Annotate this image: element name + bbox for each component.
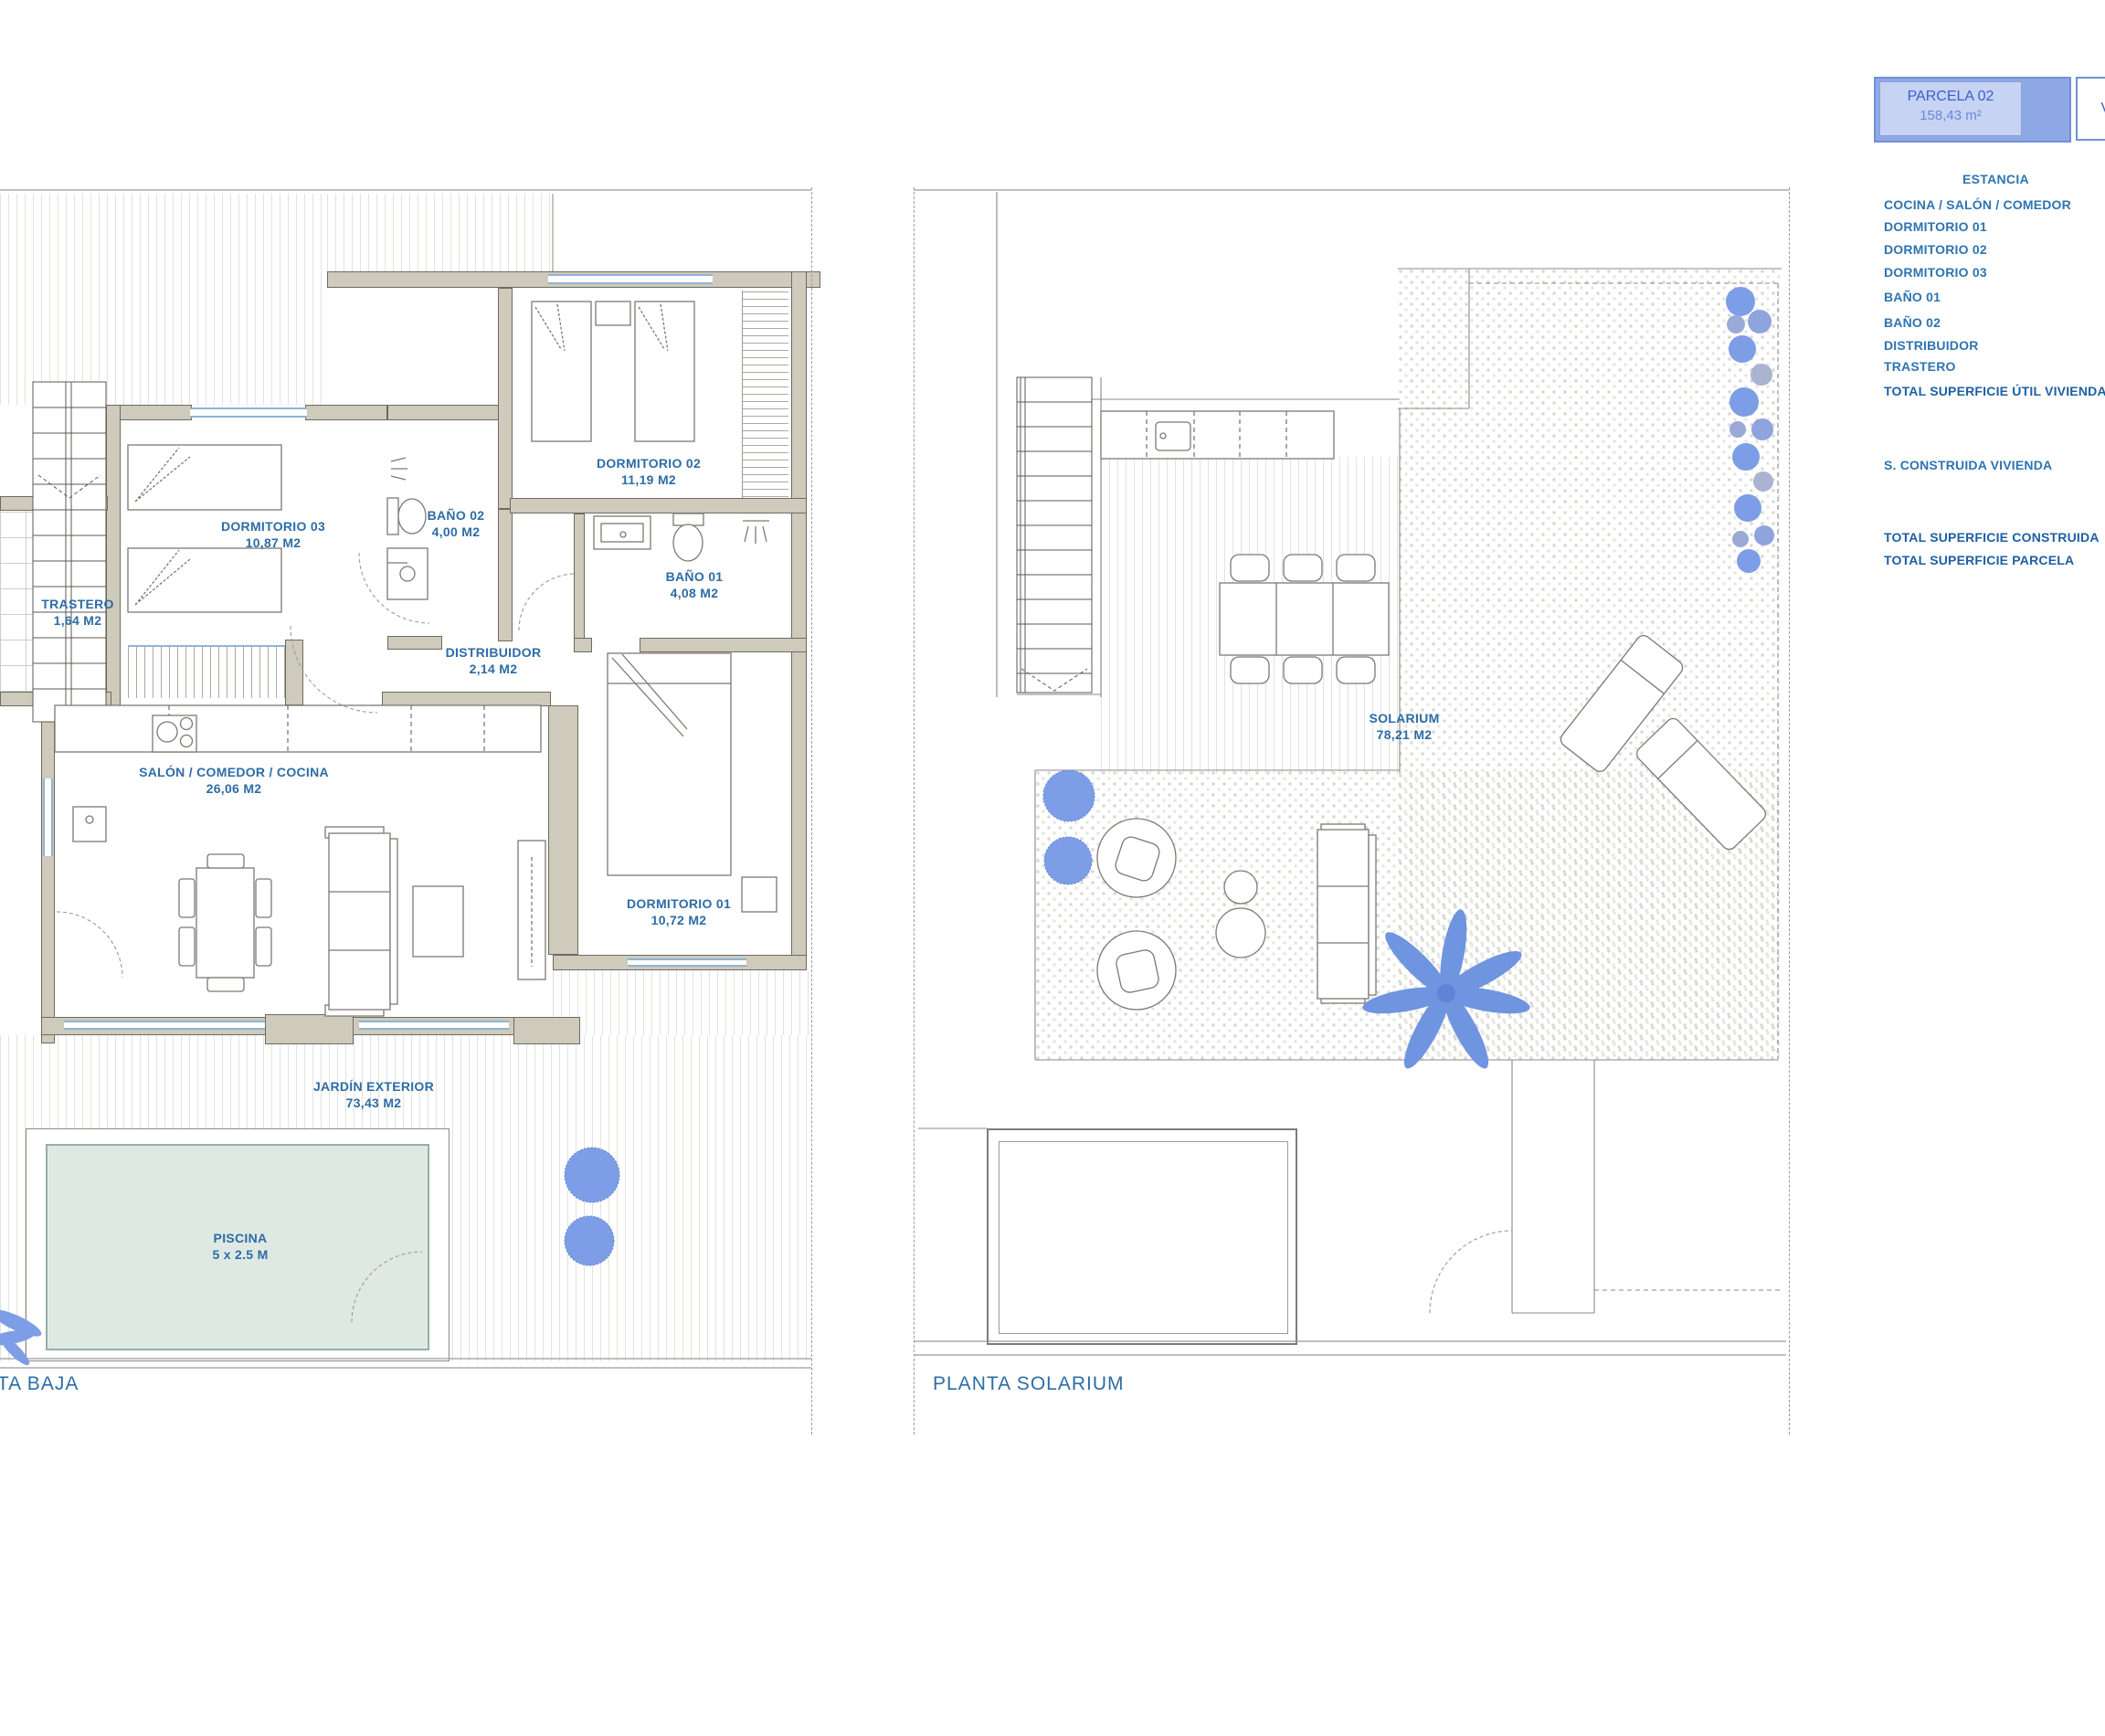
parcela-area: 158,43 m² <box>1880 108 2021 123</box>
room-label-salon-comedor-cocina: SALÓN / COMEDOR / COCINA 26,06 M2 <box>139 764 329 797</box>
legend-item-bano-01: BAÑO 01 <box>1884 290 1941 304</box>
legend-s-construida: S. CONSTRUIDA VIVIENDA <box>1884 458 2052 472</box>
room-area: 4,00 M2 <box>428 524 485 540</box>
room-area: 78,21 M2 <box>1369 726 1439 743</box>
planta-baja-title: PLANTA BAJA <box>0 1373 79 1395</box>
palm-plant-icon <box>1360 907 1531 1073</box>
bathroom-fixtures-bano02 <box>387 458 428 599</box>
legend-item-cocina-salon-comedor: COCINA / SALÓN / COMEDOR <box>1884 197 2071 212</box>
room-area: 73,43 M2 <box>313 1095 434 1111</box>
sun-lounger-icons <box>1558 632 1768 852</box>
room-area: 5 x 2.5 M <box>212 1246 268 1263</box>
legend-item-trastero: TRASTERO <box>1884 359 1956 374</box>
solarium-counter <box>1101 411 1334 459</box>
room-label-bano-02: BAÑO 02 4,00 M2 <box>428 507 485 540</box>
room-area: 10,87 M2 <box>221 535 325 551</box>
room-label-bano-01: BAÑO 01 4,08 M2 <box>666 568 724 601</box>
room-name: DORMITORIO 03 <box>221 518 325 535</box>
stairs-icon-solarium <box>1017 377 1092 693</box>
legend-total-parcela: TOTAL SUPERFICIE PARCELA <box>1884 553 2074 567</box>
room-label-trastero: TRASTERO 1,64 M2 <box>41 596 113 629</box>
dining-table-icon <box>179 854 271 991</box>
terrace-furniture <box>1097 819 1376 1010</box>
legend-total-construida: TOTAL SUPERFICIE CONSTRUIDA <box>1884 530 2100 545</box>
room-area: 1,64 M2 <box>41 612 113 629</box>
room-name: DORMITORIO 02 <box>597 455 701 471</box>
legend-item-dormitorio-03: DORMITORIO 03 <box>1884 265 1987 280</box>
floor-plan-sheet: { "legend": { "parcela": { "title": "PAR… <box>0 0 2105 1736</box>
room-label-dormitorio-01: DORMITORIO 01 10,72 M2 <box>627 895 731 928</box>
room-name: JARDÍN EXTERIOR <box>313 1078 434 1095</box>
room-area: 4,08 M2 <box>666 585 724 601</box>
stairs-icon <box>33 382 106 722</box>
room-name: PISCINA <box>212 1230 268 1246</box>
sofa-icon <box>325 827 545 1016</box>
estancia-header: ESTANCIA <box>1962 172 2028 186</box>
planta-solarium-title: PLANTA SOLARIUM <box>933 1373 1125 1395</box>
plan-linework <box>0 0 2105 1736</box>
room-name: SALÓN / COMEDOR / COCINA <box>139 764 329 780</box>
hedge-foliage-icon <box>1726 287 1774 573</box>
legend-item-dormitorio-01: DORMITORIO 01 <box>1884 219 1987 234</box>
dining-table-icon-solarium <box>1220 555 1389 683</box>
room-label-piscina: PISCINA 5 x 2.5 M <box>212 1230 268 1263</box>
legend-item-distribuidor: DISTRIBUIDOR <box>1884 338 1979 353</box>
room-area: 26,06 M2 <box>139 780 329 797</box>
room-name: DISTRIBUIDOR <box>446 644 542 661</box>
bush-icons <box>0 1148 619 1369</box>
room-area: 11,19 M2 <box>597 471 701 488</box>
room-name: SOLARIUM <box>1369 710 1439 726</box>
parcela-title: PARCELA 02 <box>1880 89 2021 105</box>
room-label-dormitorio-03: DORMITORIO 03 10,87 M2 <box>221 518 325 551</box>
room-area: 2,14 M2 <box>446 661 542 677</box>
legend-total-util: TOTAL SUPERFICIE ÚTIL VIVIENDA <box>1884 384 2105 398</box>
room-area: 10,72 M2 <box>627 912 731 928</box>
room-label-jardin-exterior: JARDÍN EXTERIOR 73,43 M2 <box>313 1078 434 1111</box>
parcela-card-inner: PARCELA 02 158,43 m² <box>1879 81 2022 136</box>
parcela-card: PARCELA 02 158,43 m² <box>1874 77 2071 143</box>
bed-icon-dorm01 <box>608 653 777 912</box>
legend-item-bano-02: BAÑO 02 <box>1884 315 1941 330</box>
bathroom-fixtures-bano01 <box>594 513 769 561</box>
room-name: DORMITORIO 01 <box>627 895 731 912</box>
room-name: TRASTERO <box>41 596 113 612</box>
room-label-distribuidor: DISTRIBUIDOR 2,14 M2 <box>446 644 542 677</box>
room-label-solarium: SOLARIUM 78,21 M2 <box>1369 710 1439 743</box>
room-name: BAÑO 01 <box>666 568 724 585</box>
room-name: BAÑO 02 <box>428 507 485 524</box>
terrace-plants <box>1043 770 1532 1074</box>
legend-item-dormitorio-02: DORMITORIO 02 <box>1884 242 1987 257</box>
vivienda-card-cropped: V <box>2076 77 2105 141</box>
bed-icon-dorm02 <box>532 302 694 441</box>
room-label-dormitorio-02: DORMITORIO 02 11,19 M2 <box>597 455 701 488</box>
